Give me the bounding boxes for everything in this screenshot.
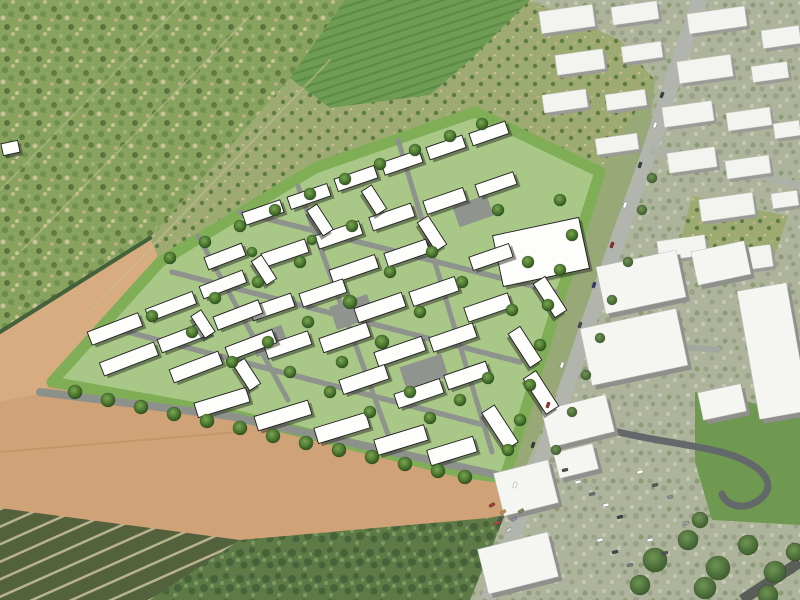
courtyard-tree: [506, 304, 518, 316]
boundary-tree: [542, 299, 554, 311]
courtyard-tree: [454, 394, 466, 406]
courtyard-tree: [424, 412, 436, 424]
existing-tree: [764, 561, 786, 583]
roadside-tree: [637, 205, 647, 215]
courtyard-tree: [226, 356, 238, 368]
street-tree: [134, 400, 148, 414]
courtyard-tree: [262, 336, 274, 348]
street-tree: [101, 393, 115, 407]
existing-tree: [678, 530, 698, 550]
boundary-tree: [476, 118, 488, 130]
courtyard-tree: [522, 256, 534, 268]
boundary-tree: [339, 173, 351, 185]
street-tree: [266, 429, 280, 443]
roadside-tree: [647, 173, 657, 183]
courtyard-tree: [284, 366, 296, 378]
street-tree: [458, 470, 472, 484]
courtyard-tree: [426, 246, 438, 258]
boundary-tree: [554, 194, 566, 206]
roadside-tree: [623, 257, 633, 267]
existing-tree: [706, 556, 730, 580]
courtyard-tree: [252, 276, 264, 288]
roadside-tree: [595, 333, 605, 343]
street-tree: [332, 443, 346, 457]
street-tree: [365, 450, 379, 464]
existing-tree: [694, 577, 716, 599]
courtyard-tree: [209, 292, 221, 304]
boundary-tree: [534, 339, 546, 351]
roadside-tree: [551, 445, 561, 455]
street-tree: [431, 464, 445, 478]
courtyard-tree: [482, 372, 494, 384]
existing-tree: [692, 512, 708, 528]
courtyard-tree: [336, 356, 348, 368]
roadside-tree: [567, 407, 577, 417]
boundary-tree: [524, 379, 536, 391]
courtyard-tree: [414, 306, 426, 318]
courtyard-tree: [307, 235, 317, 245]
courtyard-tree: [375, 335, 389, 349]
boundary-tree: [514, 414, 526, 426]
courtyard-tree: [346, 220, 358, 232]
boundary-tree: [444, 130, 456, 142]
courtyard-tree: [343, 295, 357, 309]
roadside-tree: [607, 295, 617, 305]
street-tree: [398, 457, 412, 471]
boundary-tree: [566, 229, 578, 241]
courtyard-tree: [302, 316, 314, 328]
boundary-tree: [409, 144, 421, 156]
boundary-tree: [304, 188, 316, 200]
courtyard-tree: [384, 266, 396, 278]
boundary-tree: [199, 236, 211, 248]
courtyard-tree: [186, 326, 198, 338]
boundary-tree: [374, 158, 386, 170]
street-tree: [200, 414, 214, 428]
boundary-tree: [502, 444, 514, 456]
boundary-tree: [164, 252, 176, 264]
boundary-tree: [234, 220, 246, 232]
courtyard-tree: [456, 276, 468, 288]
street-tree: [68, 385, 82, 399]
existing-tree: [630, 575, 650, 595]
street-tree: [167, 407, 181, 421]
existing-tree: [643, 548, 667, 572]
courtyard-tree: [294, 256, 306, 268]
boundary-tree: [554, 264, 566, 276]
planning-visualization: [0, 0, 800, 600]
courtyard-tree: [146, 310, 158, 322]
existing-tree: [738, 535, 758, 555]
roadside-tree: [581, 370, 591, 380]
courtyard-tree: [247, 247, 257, 257]
courtyard-tree: [404, 386, 416, 398]
street-tree: [233, 421, 247, 435]
courtyard-tree: [324, 386, 336, 398]
street-tree: [299, 436, 313, 450]
courtyard-tree: [492, 204, 504, 216]
aerial-view: [0, 0, 800, 600]
boundary-tree: [269, 204, 281, 216]
courtyard-tree: [364, 406, 376, 418]
